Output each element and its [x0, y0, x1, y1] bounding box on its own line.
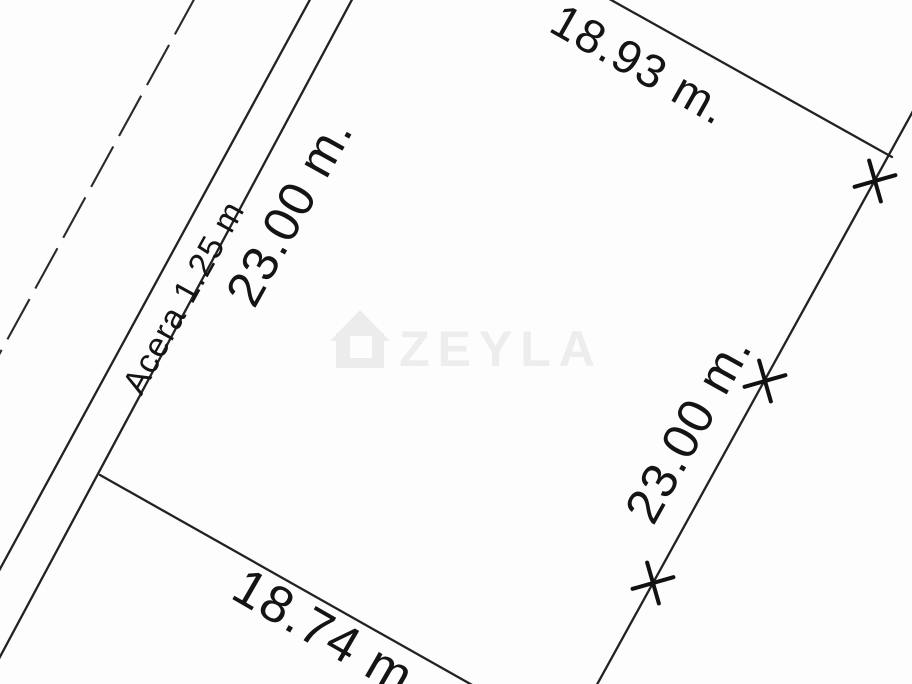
- watermark-brand-text: ZEYLA: [399, 321, 603, 377]
- top-dimension-label: 18.93 m.: [542, 0, 738, 135]
- survey-plot-sketch: ZEYLA 18.93 m. 23.00 m. Acera 1.25 m 23.…: [0, 0, 912, 684]
- survey-tick-mark: [633, 563, 674, 604]
- watermark: ZEYLA: [330, 310, 603, 377]
- bottom-dimension-label: 18.74 m: [223, 557, 424, 684]
- parcel-right-boundary: [594, 102, 912, 684]
- survey-tick-mark: [855, 161, 896, 202]
- house-icon: [330, 310, 390, 368]
- right-dimension-label: 23.00 m.: [614, 324, 763, 532]
